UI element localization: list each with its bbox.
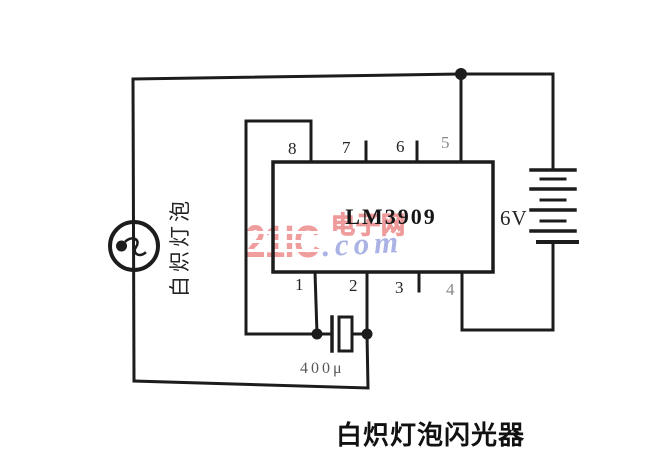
battery-voltage-label: 6V — [500, 206, 528, 231]
pin-number-7: 7 — [342, 139, 351, 156]
pin-number-2: 2 — [349, 277, 358, 294]
pin-number-8: 8 — [288, 140, 297, 157]
pin-number-5: 5 — [441, 134, 450, 151]
pin-number-3: 3 — [395, 279, 404, 296]
schematic-page: 21IC 电子网 .com — [0, 0, 657, 469]
capacitor-value-label: 400μ — [300, 360, 345, 378]
figure-caption: 白炽灯泡闪光器 — [318, 415, 543, 452]
lamp-name-label: 白炽灯泡 — [167, 187, 193, 307]
pin-number-6: 6 — [396, 138, 405, 155]
labels: 8 7 6 5 1 2 3 4 LM3909 6V 400μ 白炽灯泡 白炽灯泡… — [0, 0, 657, 469]
pin-number-1: 1 — [295, 276, 304, 293]
ic-part-number: LM3909 — [326, 204, 456, 230]
pin-number-4: 4 — [446, 281, 455, 298]
